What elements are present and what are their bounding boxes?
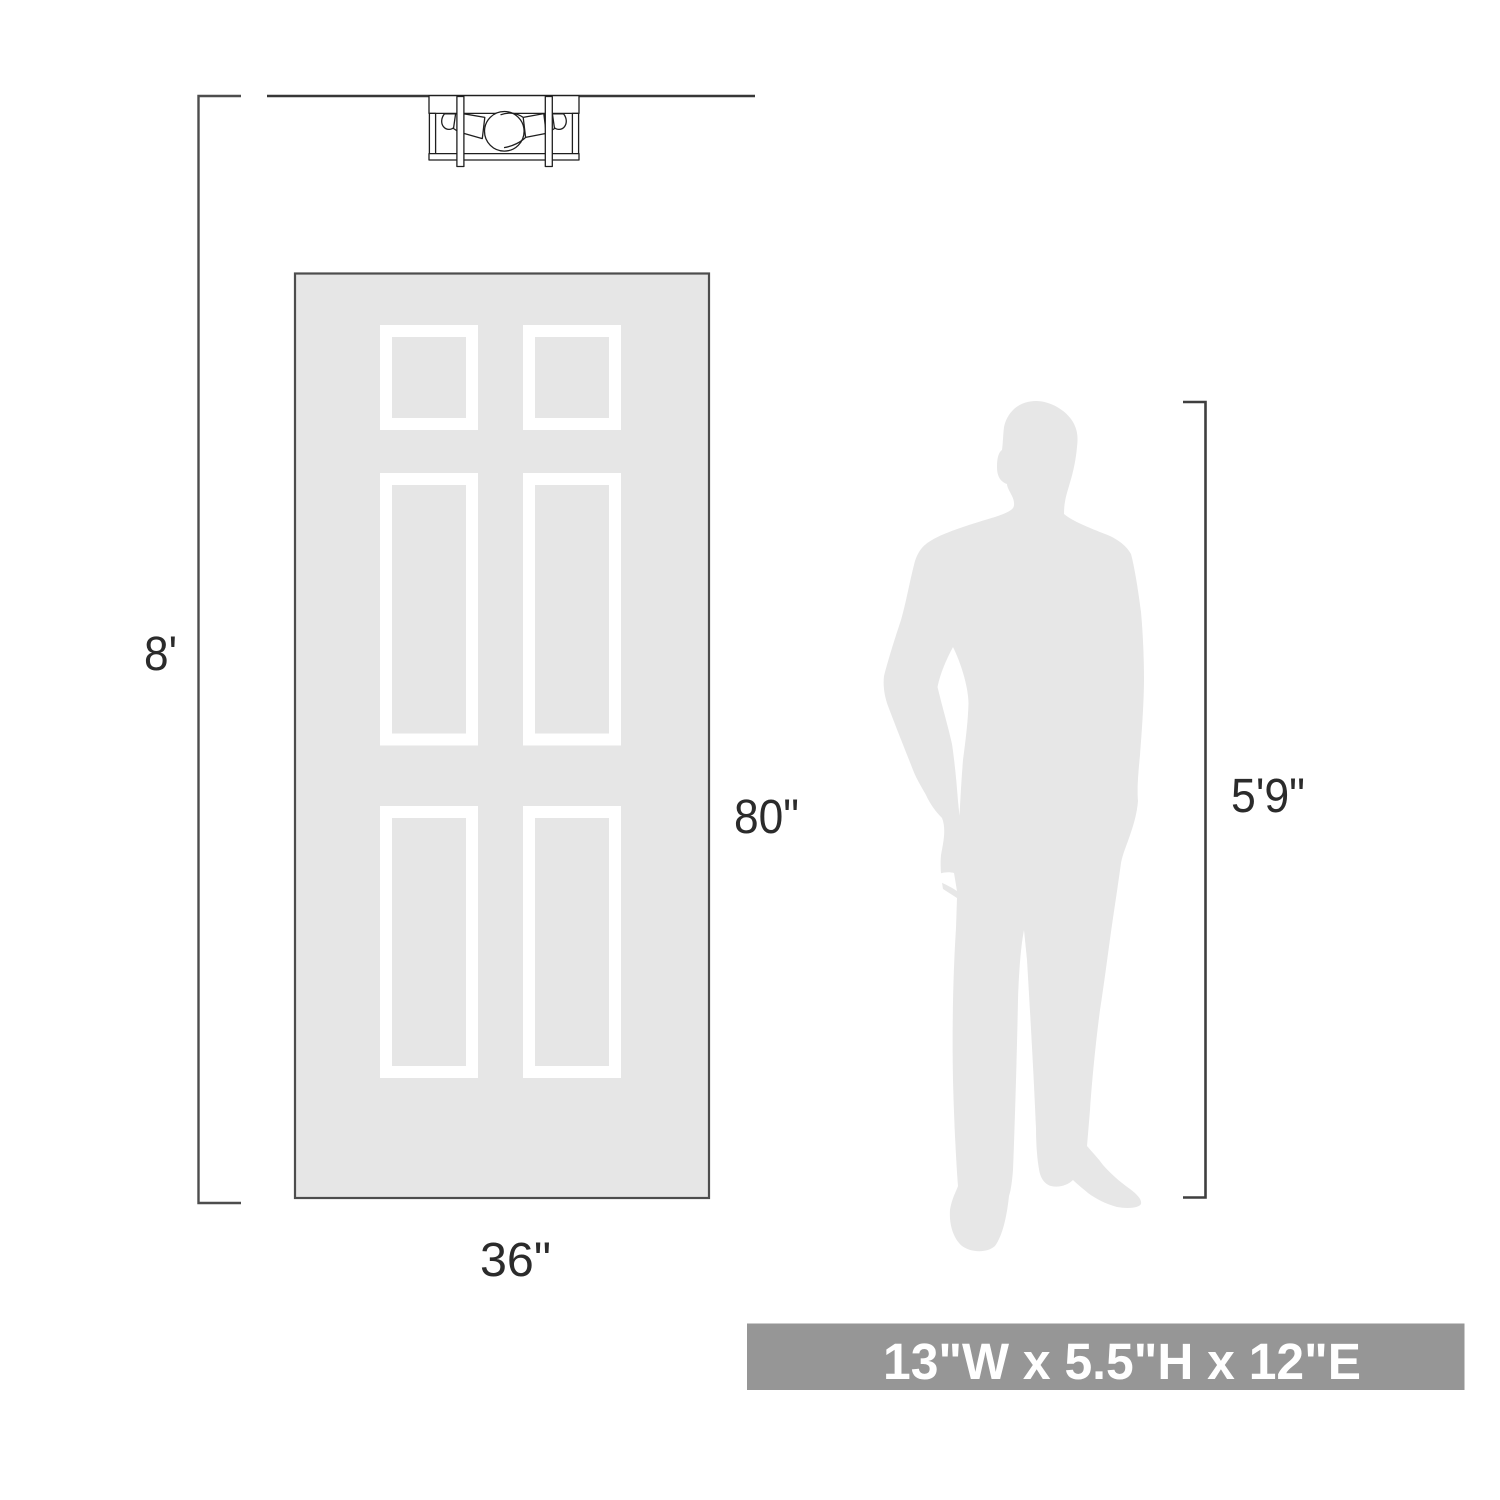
svg-text:5'9": 5'9": [1231, 770, 1305, 823]
svg-text:80": 80": [734, 791, 799, 844]
svg-text:8': 8': [144, 628, 177, 681]
svg-text:36": 36": [480, 1234, 551, 1287]
svg-text:13"W x 5.5"H x 12"E: 13"W x 5.5"H x 12"E: [883, 1333, 1361, 1390]
